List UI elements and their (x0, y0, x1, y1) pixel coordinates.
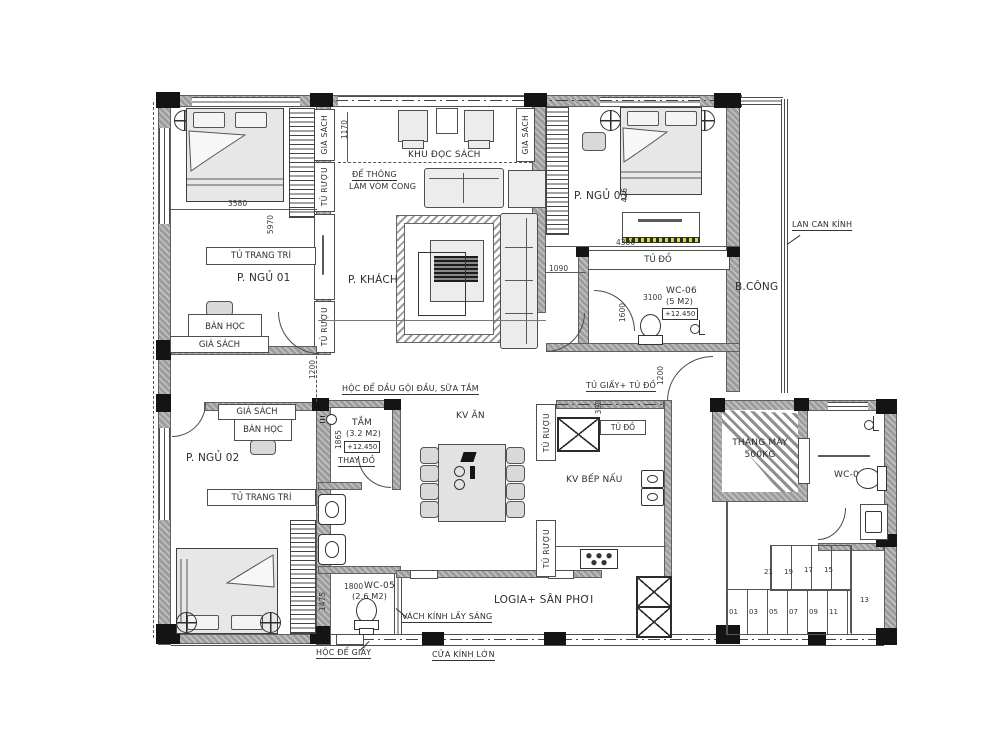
tu-trang-tri-ngu02: TỦ TRANG TRÍ (207, 489, 316, 506)
desk-label: BÀN HỌC (205, 322, 245, 332)
column (524, 93, 547, 107)
room-label-thang-may: THANG MÁY (726, 438, 794, 448)
room-label-wc06: WC-06 (666, 286, 697, 296)
cabinet-tu-ruou-dining-top: TỦ RƯỢU (536, 404, 556, 461)
dim-426: 426 (620, 188, 629, 202)
note-tu-giay-tu-do: TỦ GIẤY+ TỦ ĐỒ (586, 381, 656, 392)
stair-number: 01 (729, 608, 738, 616)
dim-1600: 1600 (618, 303, 627, 322)
wardrobe-hatch-ngu01 (289, 108, 315, 218)
stair-number: 17 (804, 566, 813, 574)
cabinet-label: GIÁ SÁCH (320, 115, 329, 155)
room-label-tam: TẮM (352, 418, 372, 428)
dining-chair (506, 483, 525, 500)
wall-tam-right (392, 400, 401, 490)
shelf-label: TỦ TRANG TRÍ (232, 493, 292, 503)
paper-niche (336, 634, 364, 645)
room-label-khach: P. KHÁCH (348, 274, 398, 286)
sofa-2seat (424, 168, 504, 208)
fridge (557, 417, 600, 452)
stair-number: 21 (764, 568, 773, 576)
cabinet-label: TỦ RƯỢU (320, 167, 329, 206)
door-arc-ngu02 (172, 403, 206, 437)
dining-chair (420, 483, 439, 500)
dim-ext-line (316, 356, 317, 402)
dim-1865: 1865 (334, 430, 343, 449)
shelf-label: GIÁ SÁCH (236, 407, 277, 417)
door-arc-hall-stairs (667, 356, 713, 401)
armchair-ngu03 (582, 132, 606, 151)
column (576, 246, 589, 257)
toilet-base-wc05 (359, 628, 374, 635)
note-lam-vom-cong: LÀM VÒM CONG (349, 182, 416, 191)
cabinet-label: GIÁ SÁCH (521, 115, 530, 155)
tu-trang-tri-ngu01: TỦ TRANG TRÍ (206, 247, 316, 265)
desk-chair (250, 440, 276, 455)
column (312, 398, 329, 411)
kitchen-sink (641, 470, 664, 488)
reading-nook-open-top (338, 96, 524, 107)
dining-chair (420, 501, 439, 518)
note-thay-do: THAY ĐỒ (338, 456, 375, 467)
shelf-label: TỦ TRANG TRÍ (231, 251, 291, 261)
reading-chair (398, 110, 428, 142)
note-lan-can-kinh: LAN CAN KÍNH (792, 220, 852, 231)
window-ngu03-top (600, 97, 700, 107)
wall-bottom-ngu02 (171, 634, 321, 644)
stair-number-landing: 13 (860, 596, 869, 604)
column (156, 394, 171, 412)
door-arc-wc06 (594, 290, 635, 331)
closet-label: TỦ ĐỒ (611, 423, 635, 432)
ceiling-fixture-icon (260, 612, 281, 633)
column (876, 628, 897, 645)
wall-wc06-left (578, 252, 589, 352)
column (156, 340, 171, 360)
gia-sach-ngu01: GIÁ SÁCH (170, 336, 269, 353)
shelf-label: GIÁ SÁCH (199, 340, 240, 350)
cabinet-label: TỦ RƯỢU (320, 307, 329, 346)
note-de-thong: ĐỂ THÔNG (352, 170, 397, 181)
dining-chair (506, 447, 525, 464)
room-label-wc05: WC-05 (364, 581, 395, 591)
column (384, 399, 401, 410)
counter-edge (556, 546, 666, 547)
column (544, 632, 566, 645)
room-label-logia: LOGIA+ SÂN PHƠI (494, 594, 593, 606)
table-decor-bar (470, 466, 475, 479)
cabinet-label: TỦ RƯỢU (542, 529, 551, 568)
ban-hoc-ngu02: BÀN HỌC (234, 419, 292, 441)
column (794, 398, 809, 411)
cabinet-tu-ruou-dining-bottom: TỦ RƯỢU (536, 520, 556, 577)
level-flag-wc06: +12.450 (662, 308, 698, 320)
logia-door-gap (410, 570, 438, 579)
note-hoc-de-dau: HỘC ĐỂ DẦU GỘI ĐẦU, SỮA TẮM (342, 384, 479, 395)
stair-number: 07 (789, 608, 798, 616)
column (310, 93, 333, 107)
shaft-duct (636, 606, 672, 638)
kitchen-tu-do: TỦ ĐỒ (600, 420, 646, 435)
column (876, 399, 897, 414)
room-area-wc06: (5 M2) (666, 297, 693, 306)
elevator-capacity: 500KG (726, 450, 794, 460)
reading-chair (464, 110, 494, 142)
dim-3580: 3580 (228, 199, 247, 208)
dining-chair (506, 501, 525, 518)
stair-number: 09 (809, 608, 818, 616)
wardrobe-hatch-ngu02 (290, 520, 316, 634)
column (156, 92, 180, 108)
dim-line (347, 112, 348, 162)
room-label-ngu01: P. NGỦ 01 (237, 272, 291, 284)
bed-ngu03 (620, 107, 702, 195)
stove-icon (580, 549, 618, 569)
dim-3100: 3100 (643, 293, 662, 302)
room-label-ngu02: P. NGỦ 02 (186, 452, 240, 464)
window-ngu02-left (159, 428, 170, 520)
note-cua-kinh-lon: CỬA KÍNH LỚN (432, 650, 495, 661)
tv-stand-outline (418, 252, 466, 316)
note-hoc-de-giay: HỘC ĐỂ GIẤY (316, 648, 371, 659)
dim-line (546, 246, 740, 247)
stair-number: 05 (769, 608, 778, 616)
elevator-door (798, 438, 810, 484)
wardrobe-hatch-ngu03 (546, 107, 569, 235)
cabinet-gia-sach-v2: GIÁ SÁCH (516, 108, 535, 162)
cabinet-tu-ruou-v1-top: TỦ RƯỢU (314, 162, 335, 212)
column (714, 93, 741, 108)
property-line-left (153, 102, 154, 638)
cabinet-panel-v1 (314, 214, 335, 300)
dim-1200b: 1200 (656, 366, 665, 385)
column (727, 246, 740, 257)
dim-390: 390 (594, 400, 603, 414)
reading-table (436, 108, 458, 134)
door-arc-wc04 (818, 508, 846, 540)
note-vach-kinh: VÁCH KÍNH LẤY SÁNG (402, 612, 492, 623)
reading-chair-seat (402, 140, 424, 149)
ceiling-fixture-icon (600, 110, 621, 131)
dining-chair (506, 465, 525, 482)
dining-chair (420, 447, 439, 464)
centerline-kitchen-top (556, 404, 664, 405)
closet-tu-do-wc06: TỦ ĐỒ (586, 250, 730, 270)
window-ngu01-top (192, 97, 300, 107)
blanket-fold (621, 108, 701, 194)
sofa-long (500, 213, 538, 349)
toilet-tank-wc06 (638, 335, 663, 345)
gia-sach-ngu02: GIÁ SÁCH (218, 404, 296, 420)
dim-line (546, 272, 586, 273)
column (710, 398, 725, 412)
dim-5970: 5970 (266, 215, 275, 234)
leader-line (787, 235, 801, 245)
tv-cabinet-ngu03 (622, 212, 700, 238)
balcony-glass-rail (781, 99, 788, 393)
bed-ngu01 (186, 108, 284, 202)
stair-number: 19 (784, 568, 793, 576)
faucet-icon-wc06 (690, 320, 706, 336)
dim-1475: 1475 (318, 592, 327, 611)
cabinet-gia-sach-v1: GIÁ SÁCH (314, 109, 335, 161)
faucet-icon-wc04 (864, 416, 880, 432)
wc04-divider (818, 455, 870, 457)
window-wc04-top (828, 402, 868, 411)
dining-chair (420, 465, 439, 482)
tv-ngu03 (638, 219, 682, 222)
room-area-tam: (3.2 M2) (346, 429, 381, 438)
toilet-tank-wc04 (877, 466, 887, 491)
reading-chair-seat (468, 140, 490, 149)
table-plate (454, 466, 465, 477)
glass-wall-wc05 (394, 574, 402, 634)
sink-cabinet-wc04 (860, 504, 888, 540)
window-ngu01-left (159, 128, 170, 224)
shaft-duct (636, 576, 672, 608)
glass-door-line (340, 639, 876, 640)
wall-tam-bottom (318, 482, 362, 490)
floor-plan: GIÁ SÁCH TỦ RƯỢU TỦ RƯỢU GIÁ SÁCH TỦ ĐỒ (0, 0, 984, 752)
stair-number: 11 (829, 608, 838, 616)
wall-kitchen-right (664, 400, 672, 578)
dim-4300: 4300 (616, 238, 635, 247)
side-table (508, 170, 546, 208)
washbasin-icon (318, 494, 346, 525)
kitchen-sink (641, 488, 664, 506)
stair-number: 15 (824, 566, 833, 574)
cabinet-handle (322, 235, 324, 275)
dim-line (171, 209, 317, 210)
ceiling-fixture-icon (176, 612, 197, 633)
washbasin-icon (318, 534, 346, 565)
wall-wc05-top (318, 566, 401, 574)
stair-number: 03 (749, 608, 758, 616)
balcony-top-edge (740, 97, 783, 105)
level-flag-tam: +12.450 (344, 441, 380, 453)
column (422, 632, 444, 645)
room-label-kv-an: KV ĂN (456, 411, 485, 421)
blanket-fold (187, 109, 283, 201)
cabinet-label: TỦ RƯỢU (542, 413, 551, 452)
nook-dashed-edge (338, 162, 532, 163)
room-label-kv-bep: KV BẾP NẤU (566, 475, 623, 485)
desk-label: BÀN HỌC (243, 425, 283, 435)
dim-1800: 1800 (344, 582, 363, 591)
shower-icon (320, 412, 336, 426)
section-line (318, 320, 546, 321)
closet-label: TỦ ĐỒ (644, 255, 671, 265)
room-label-bcong: B.CÔNG (735, 281, 778, 293)
room-label-doc-sach: KHU ĐỌC SÁCH (408, 150, 481, 160)
table-plate (454, 479, 465, 490)
